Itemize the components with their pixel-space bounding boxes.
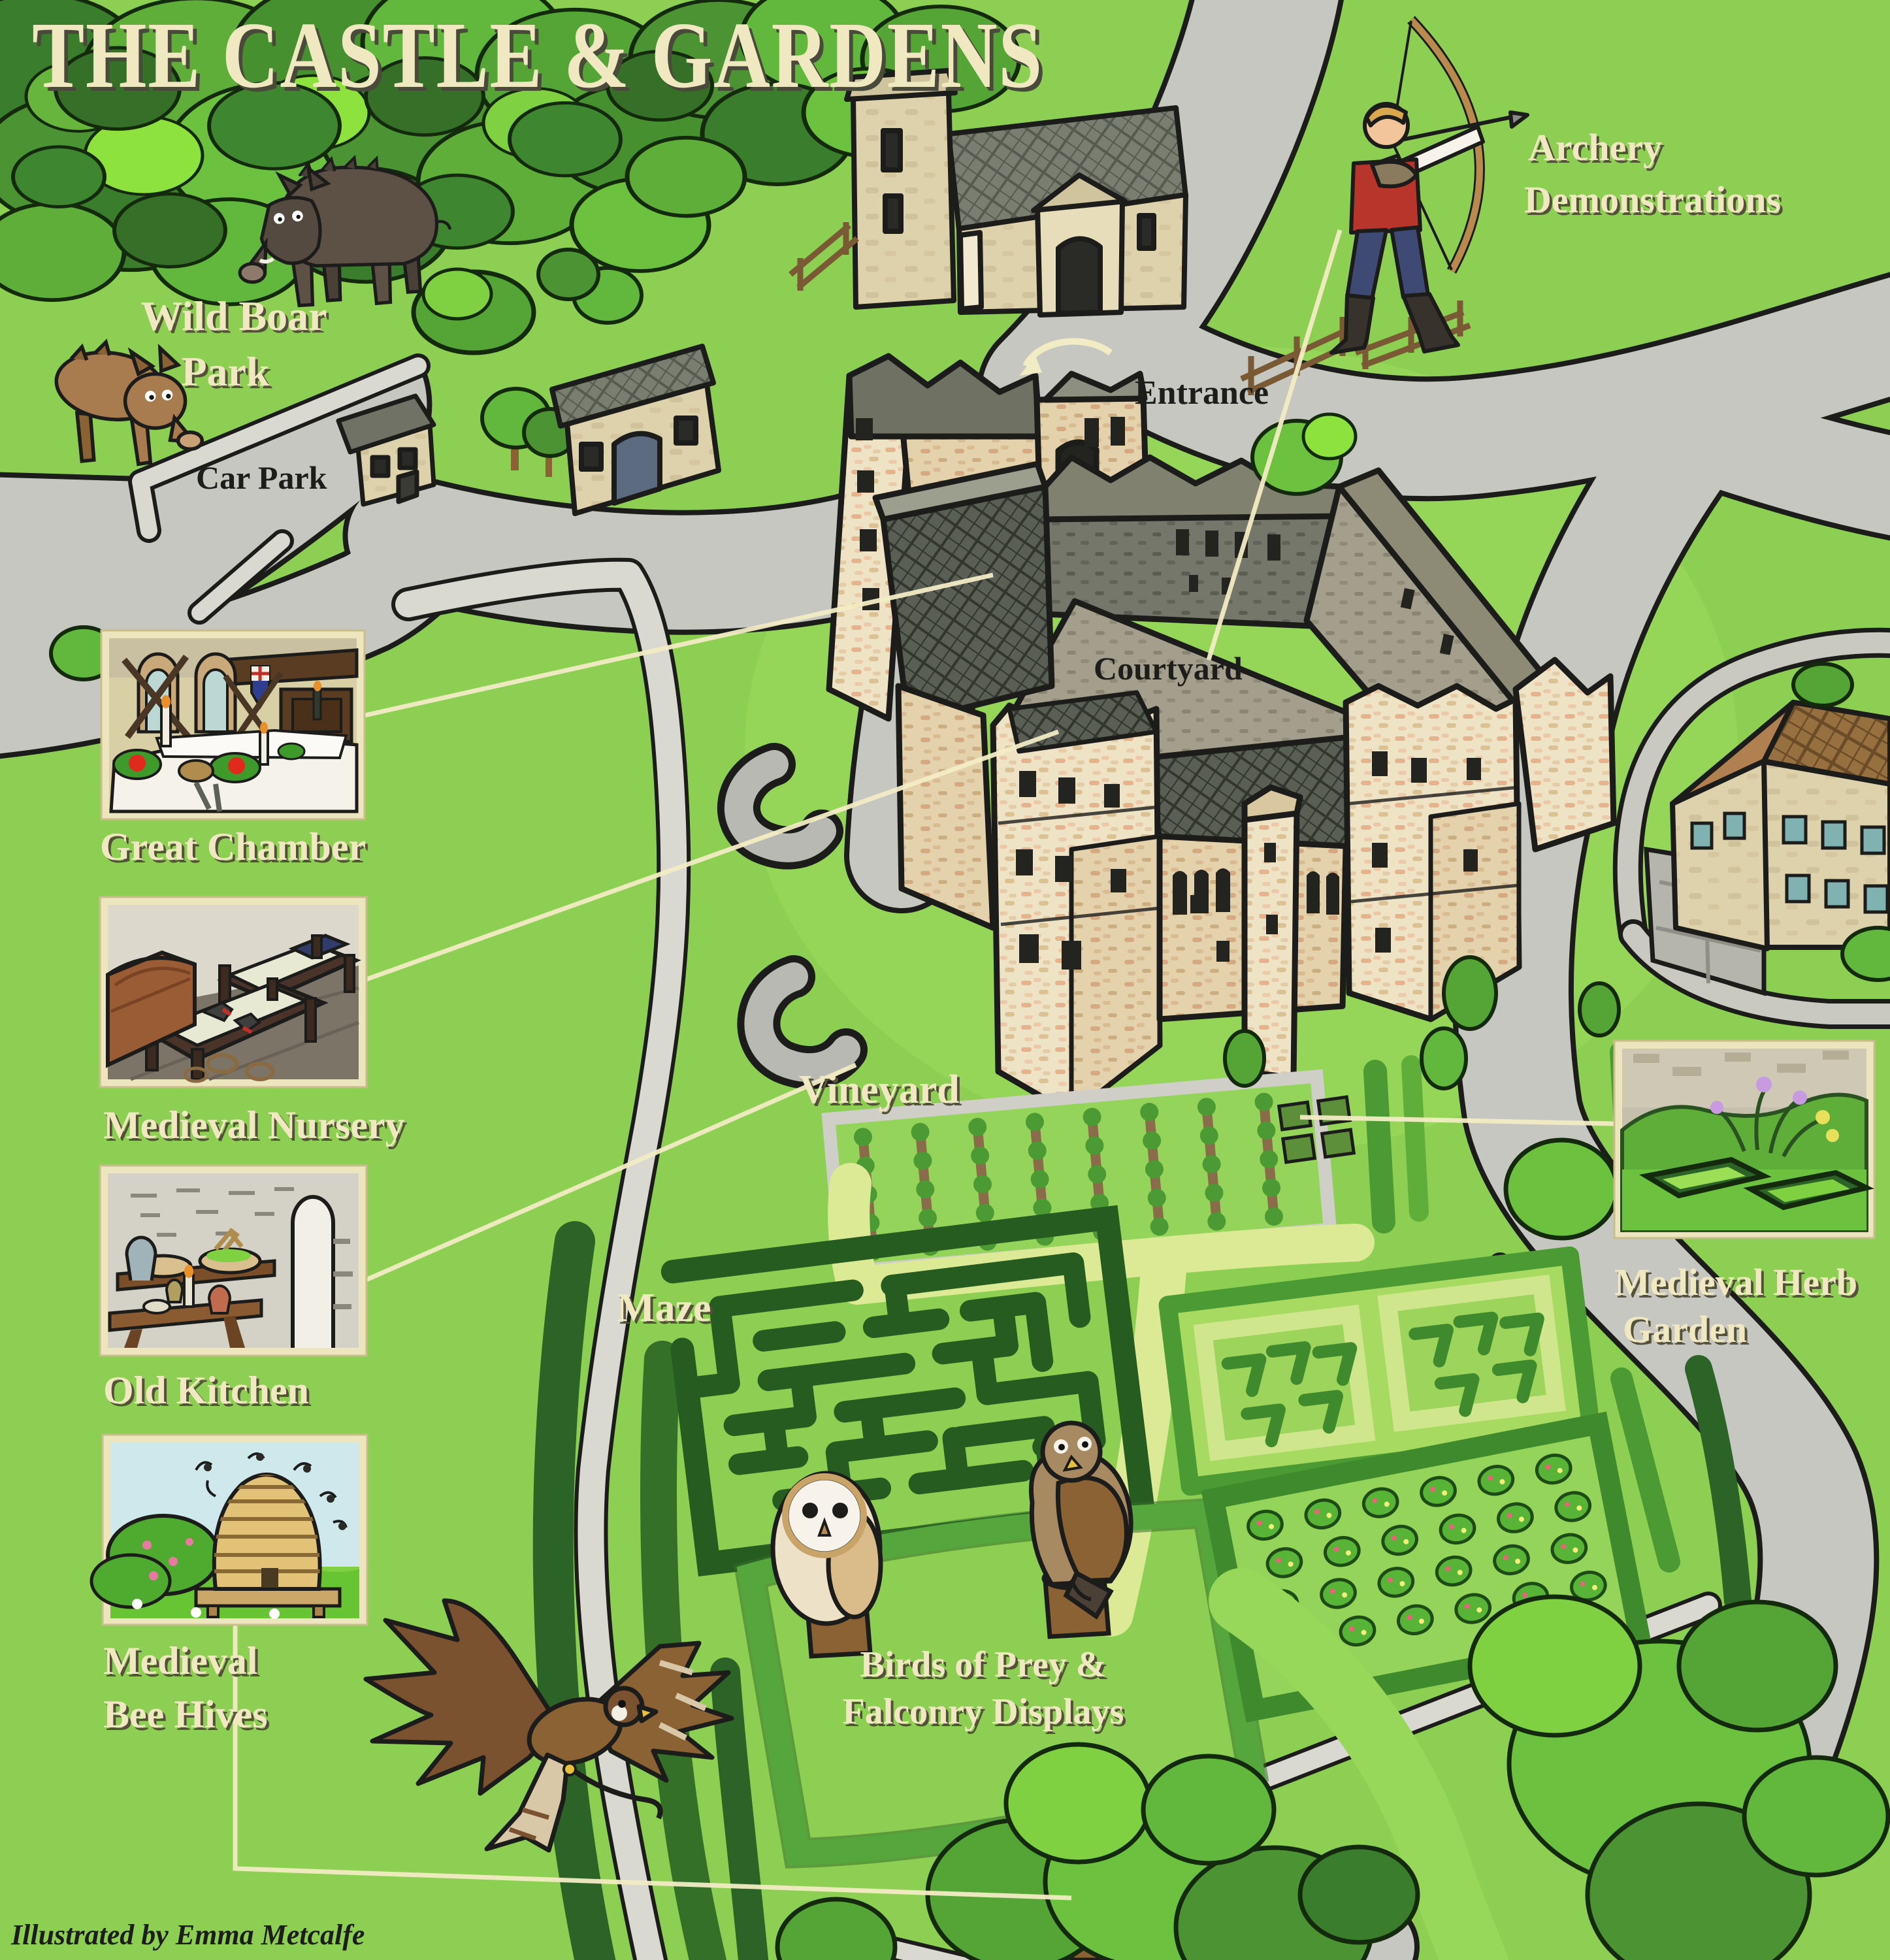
svg-text:Birds of Prey &: Birds of Prey & <box>860 1644 1107 1685</box>
svg-text:Illustrated by Emma Metcalfe: Illustrated by Emma Metcalfe <box>10 1919 365 1951</box>
svg-text:Entrance: Entrance <box>1135 374 1269 412</box>
svg-text:Demonstrations: Demonstrations <box>1524 178 1781 221</box>
svg-text:Medieval Herb: Medieval Herb <box>1614 1261 1857 1303</box>
svg-text:Vineyard: Vineyard <box>799 1068 960 1112</box>
svg-text:Medieval: Medieval <box>103 1639 258 1682</box>
svg-text:Park: Park <box>181 348 270 395</box>
svg-text:Old Kitchen: Old Kitchen <box>103 1369 309 1412</box>
svg-text:Medieval Nursery: Medieval Nursery <box>103 1103 405 1147</box>
svg-text:Garden: Garden <box>1623 1308 1747 1350</box>
svg-text:Wild Boar: Wild Boar <box>140 293 327 339</box>
svg-text:THE CASTLE & GARDENS: THE CASTLE & GARDENS <box>32 3 1043 108</box>
svg-text:Maze: Maze <box>617 1286 711 1330</box>
svg-text:Courtyard: Courtyard <box>1094 650 1243 687</box>
svg-text:Bee Hives: Bee Hives <box>103 1693 268 1736</box>
svg-text:Archery: Archery <box>1528 126 1662 169</box>
svg-text:Car Park: Car Park <box>196 459 327 496</box>
svg-text:Falconry Displays: Falconry Displays <box>843 1691 1124 1732</box>
svg-text:Great Chamber: Great Chamber <box>100 825 366 868</box>
